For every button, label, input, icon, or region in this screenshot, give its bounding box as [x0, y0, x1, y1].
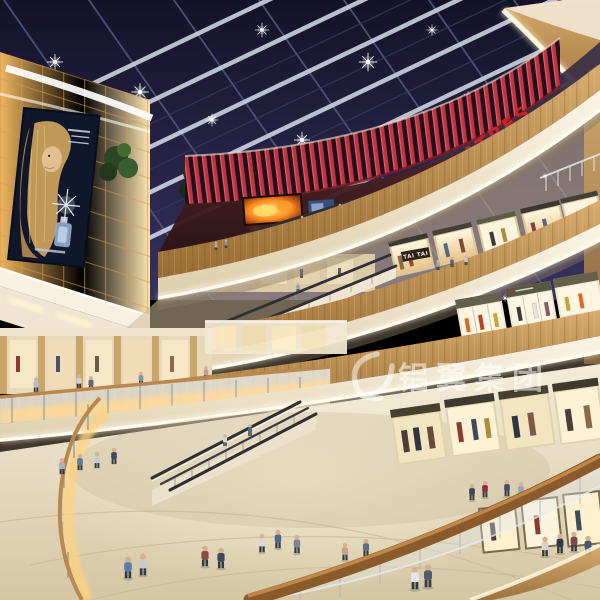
storefront [390, 403, 447, 465]
billboard [8, 108, 99, 267]
storefront [552, 378, 600, 446]
watermark-text: 铝翼集团 [398, 361, 550, 397]
storefront [553, 271, 600, 318]
mall-rendering: THEATRES [0, 0, 600, 600]
level2-back-shops [205, 320, 347, 354]
store-logo-dot [510, 290, 513, 293]
storefront [444, 393, 502, 457]
mall-screenshot: THEATRES [0, 0, 600, 600]
